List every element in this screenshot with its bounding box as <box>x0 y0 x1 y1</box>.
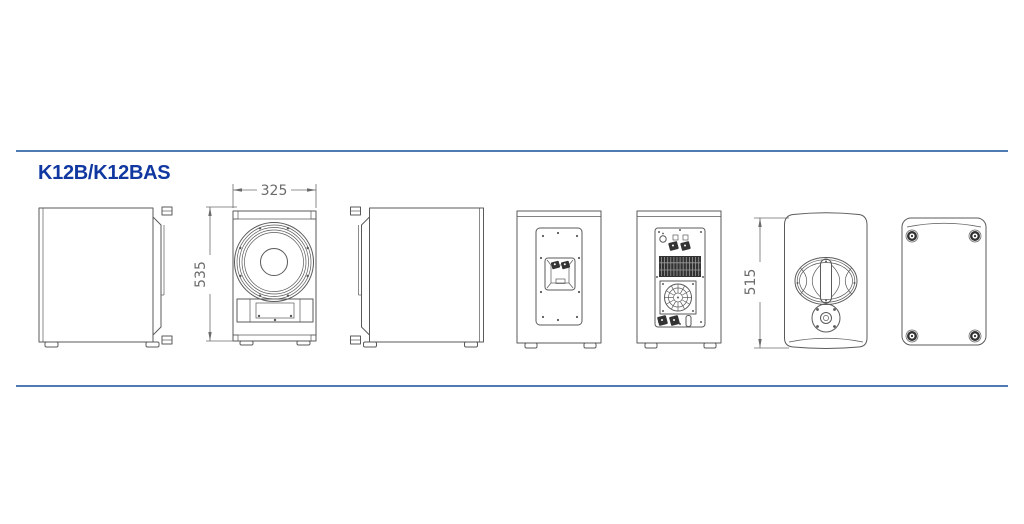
heatsink-grille <box>659 256 701 277</box>
dim-height-label: 535 <box>193 261 209 288</box>
foot-bottom-right <box>969 330 981 342</box>
side-handle <box>795 258 857 305</box>
view-rear-amplifier <box>637 211 721 348</box>
bottom-divider <box>16 385 1008 387</box>
pole-mount-socket <box>812 304 840 332</box>
view-front: 325 535 <box>193 183 316 345</box>
input-connectors <box>668 241 691 251</box>
view-side-profile: 515 <box>743 213 867 349</box>
front-feet <box>240 341 310 345</box>
speakon-connector-dish <box>545 258 575 290</box>
page: K12B/K12BAS <box>0 0 1024 524</box>
woofer <box>235 223 314 302</box>
switches <box>673 235 688 240</box>
dimension-side-height: 515 <box>743 218 789 348</box>
output-connectors <box>657 315 691 327</box>
dimension-width: 325 <box>233 183 316 208</box>
dim-side-height-label: 515 <box>743 269 759 296</box>
foot-bottom-left <box>906 330 918 342</box>
rear-feet <box>525 343 596 348</box>
front-port-handle <box>237 299 313 322</box>
gain-knob <box>660 233 666 243</box>
foot-top-right <box>969 230 981 242</box>
view-side-left <box>39 207 172 347</box>
panel-screws <box>540 232 580 321</box>
dimension-height: 535 <box>193 207 237 341</box>
view-rear-connector <box>517 211 601 348</box>
dim-width-label: 325 <box>261 183 288 199</box>
view-top <box>902 218 986 345</box>
rear-amp-feet <box>645 343 716 348</box>
cooling-fan <box>660 281 696 314</box>
foot-top-left <box>906 230 918 242</box>
technical-drawing: 325 535 <box>0 0 1024 524</box>
view-side-right <box>351 207 484 347</box>
